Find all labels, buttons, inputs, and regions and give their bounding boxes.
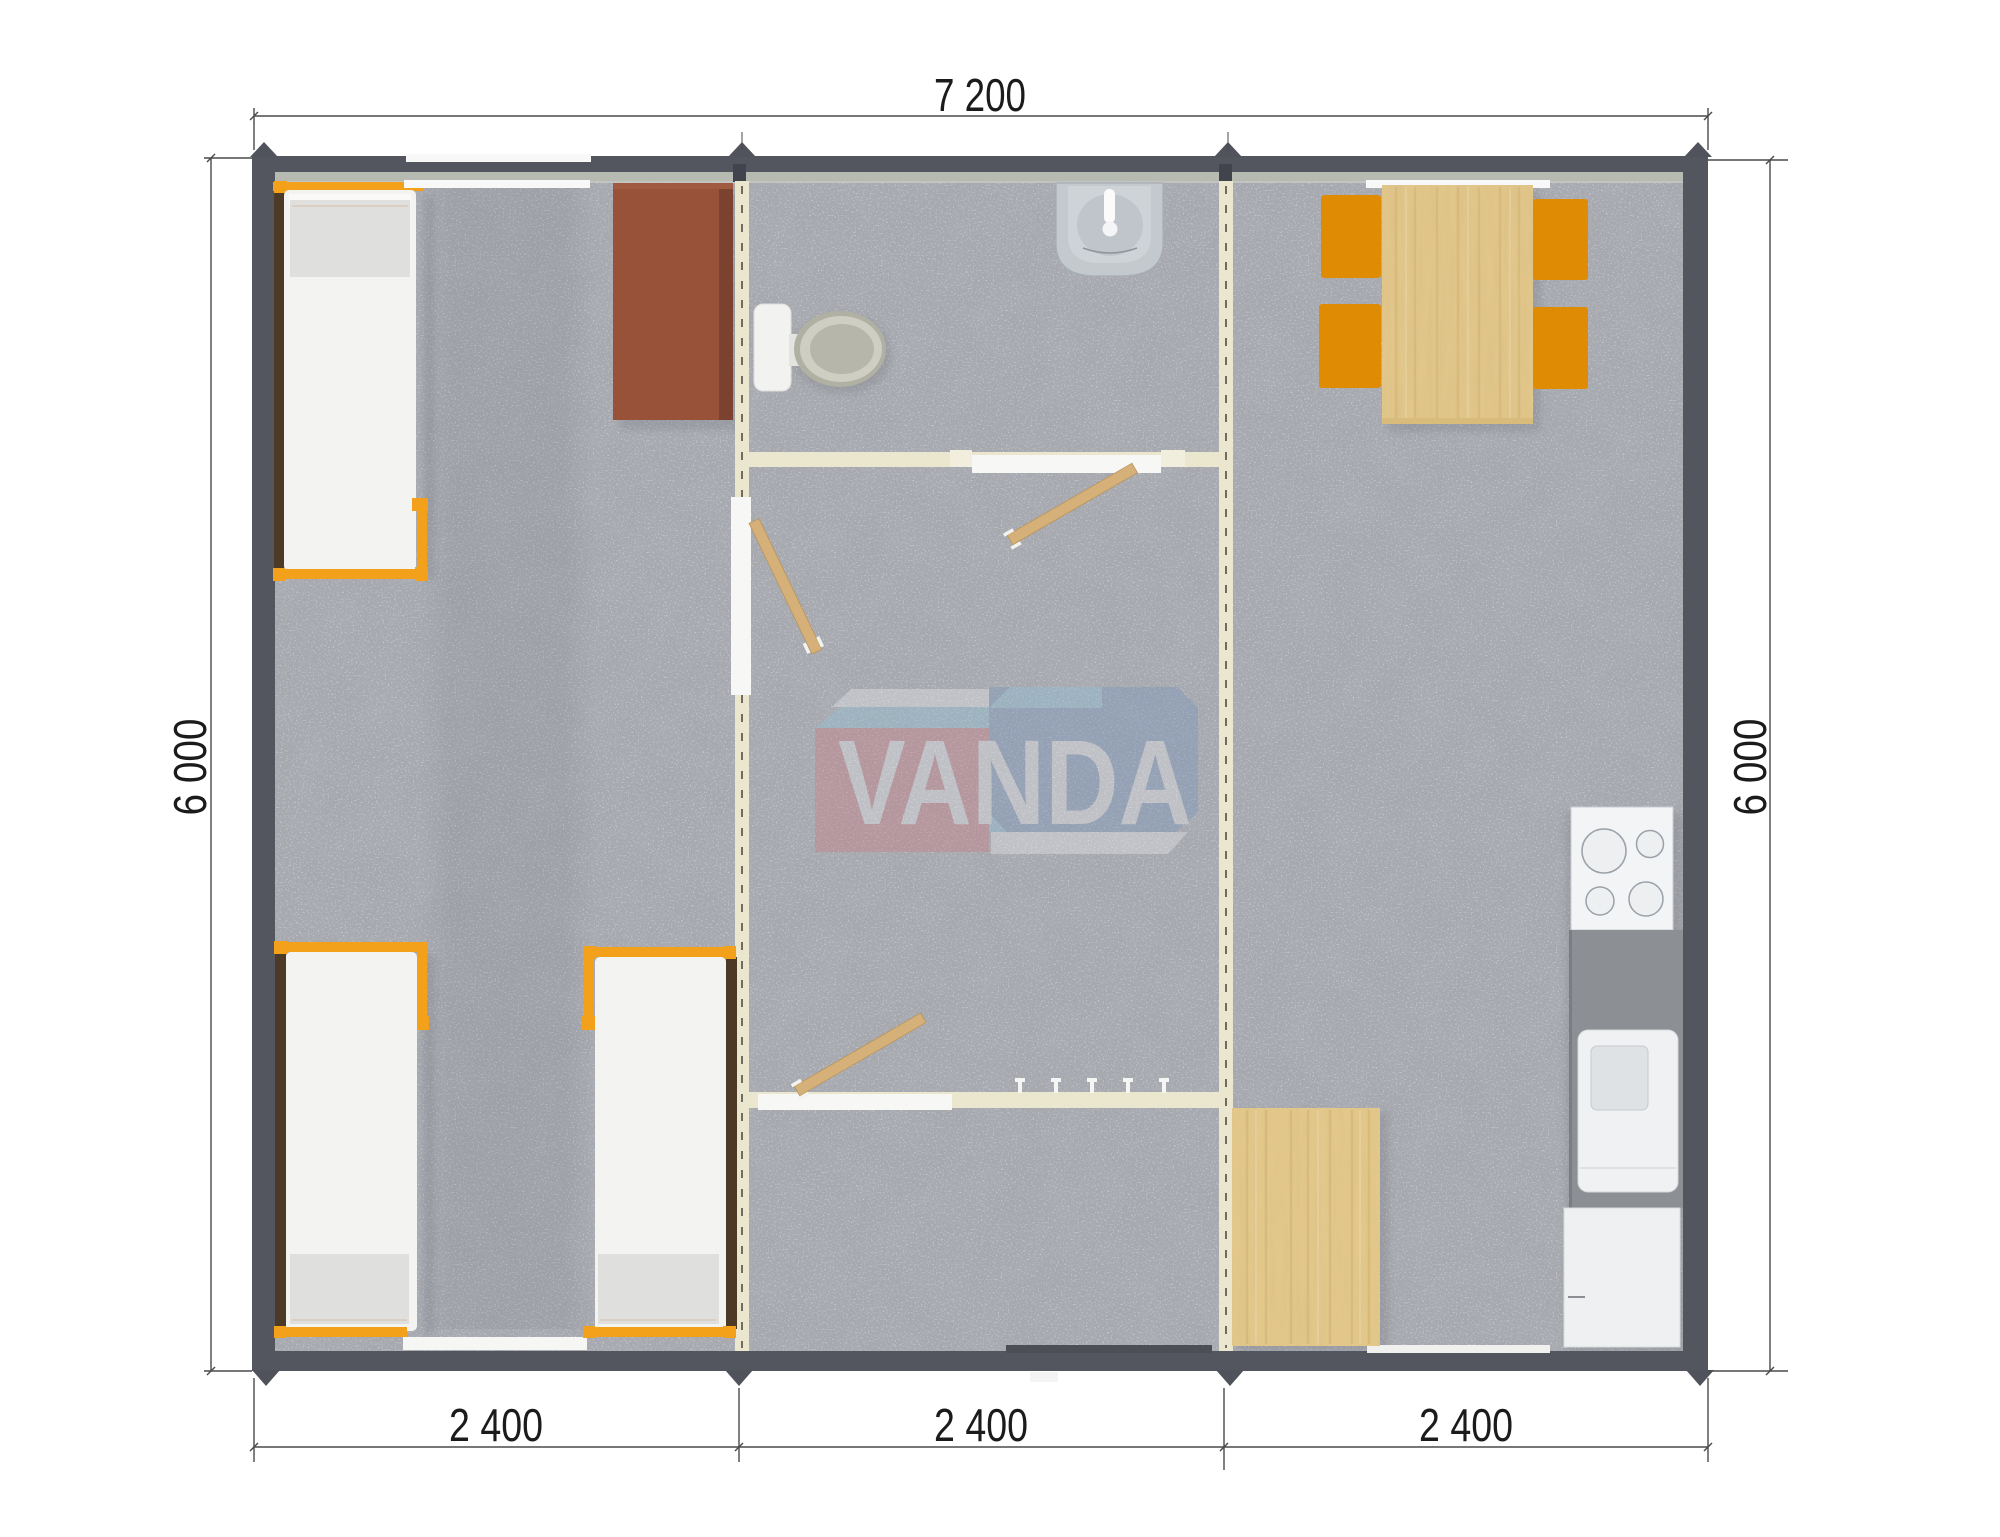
svg-text:2 400: 2 400: [1419, 1399, 1513, 1451]
svg-text:6 000: 6 000: [164, 719, 216, 816]
svg-text:7 200: 7 200: [934, 69, 1026, 121]
svg-text:VANDA: VANDA: [838, 714, 1192, 850]
svg-text:2 400: 2 400: [449, 1399, 543, 1451]
svg-text:2 400: 2 400: [934, 1399, 1028, 1451]
svg-text:6 000: 6 000: [1724, 719, 1776, 816]
